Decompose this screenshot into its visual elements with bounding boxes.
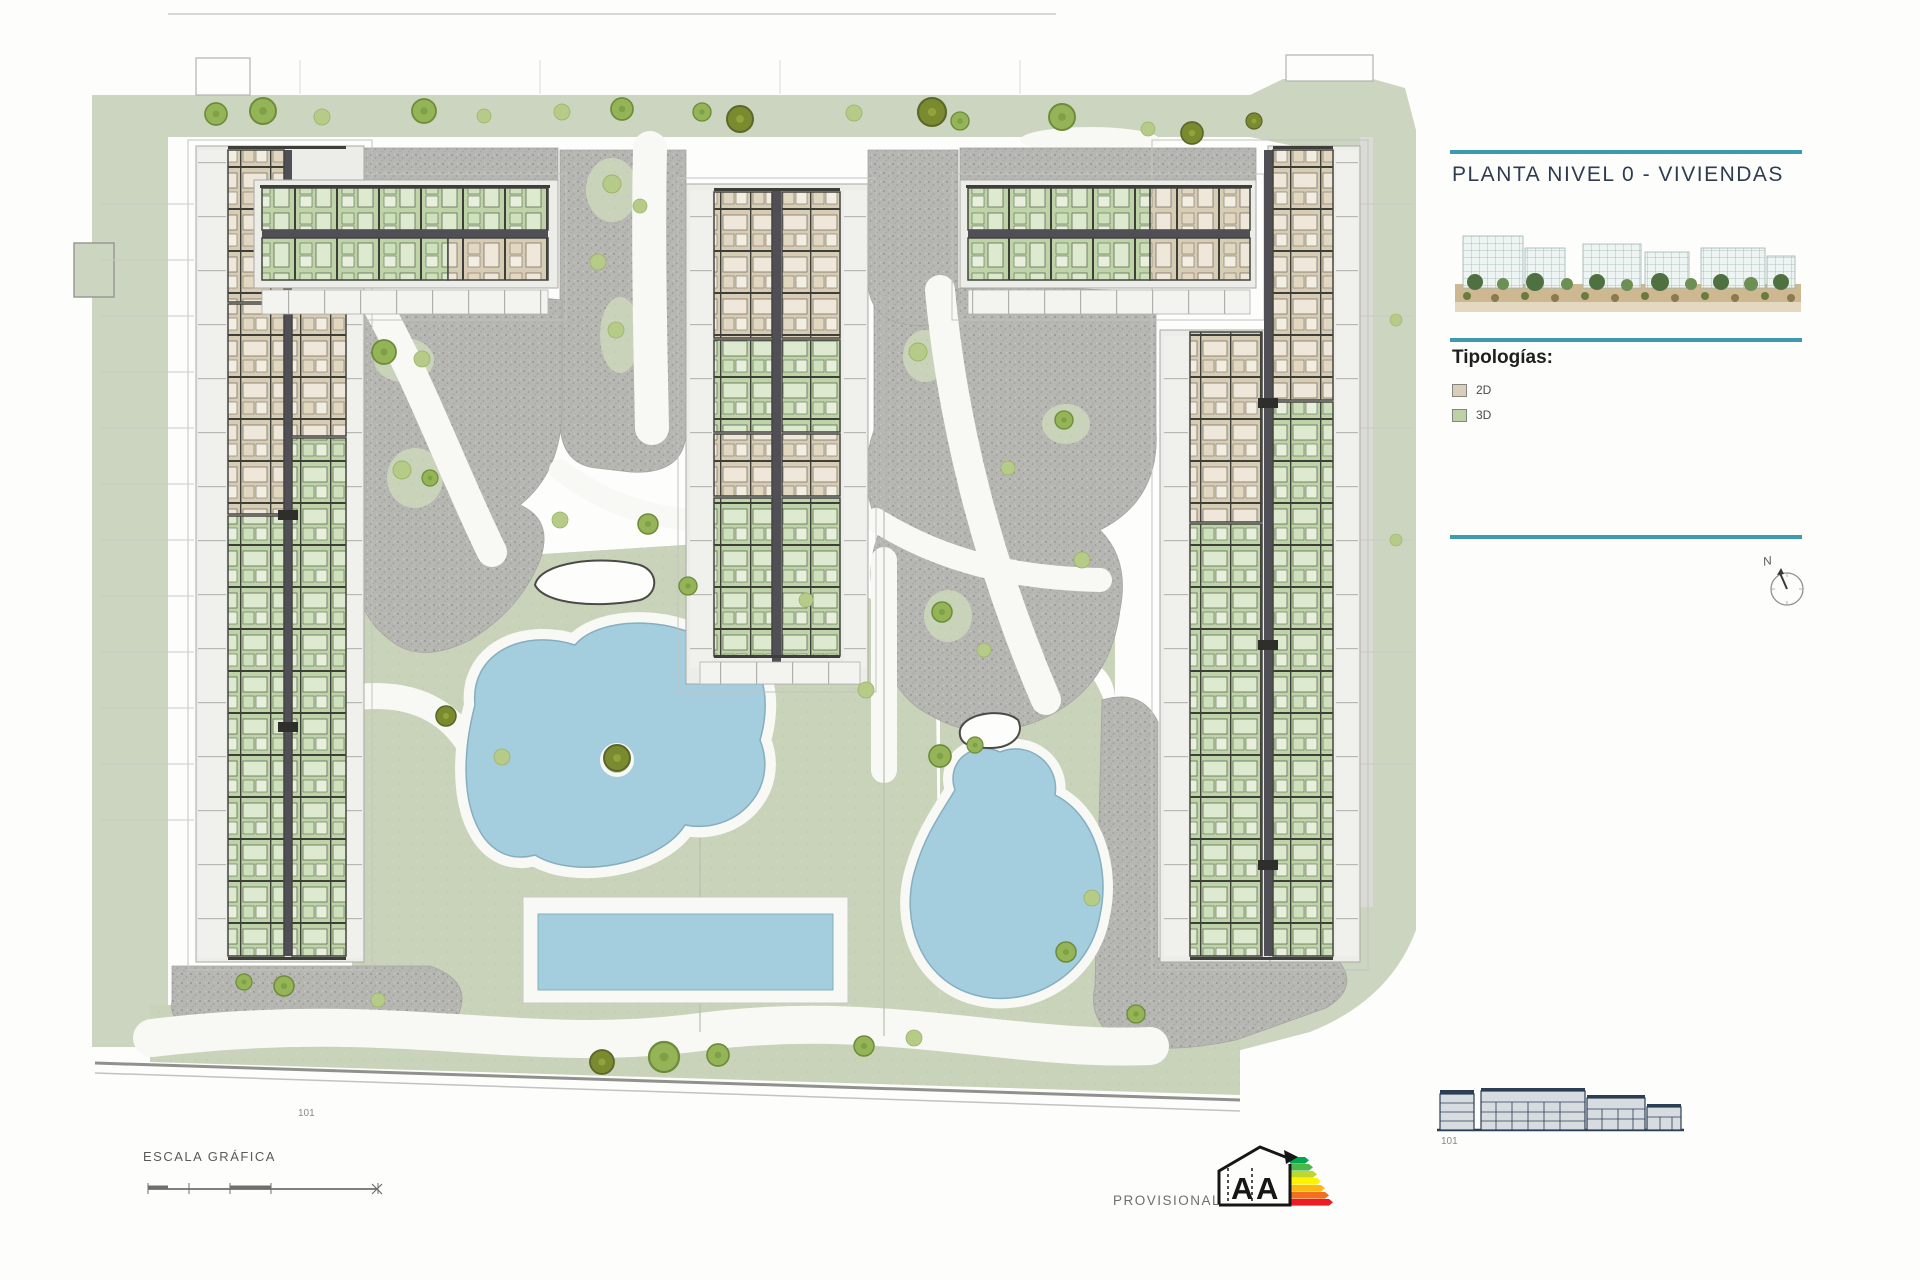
energy-certificate-icon: A A: [1219, 1147, 1333, 1206]
panel-divider-top: [1450, 150, 1802, 154]
plan-sheet-label: 101: [298, 1108, 315, 1119]
page-title: PLANTA NIVEL 0 - VIVIENDAS: [1452, 163, 1784, 187]
drawing-sheet: A A: [0, 0, 1920, 1280]
lap-pool: [538, 914, 833, 990]
legend-label-3d: 3D: [1476, 408, 1491, 422]
legend-label-2d: 2D: [1476, 383, 1491, 397]
legend-swatch-2d: [1452, 384, 1467, 397]
building-top-left: [254, 180, 558, 314]
project-render-thumbnail: [1455, 222, 1801, 318]
elevation-sheet-label: 101: [1441, 1136, 1458, 1147]
legend-item-3d: 3D: [1452, 408, 1491, 422]
scale-label: ESCALA GRÁFICA: [143, 1149, 276, 1164]
elevation-drawing: [1437, 1088, 1684, 1130]
legend-swatch-3d: [1452, 409, 1467, 422]
scale-bar: [148, 1183, 382, 1194]
legend-item-2d: 2D: [1452, 383, 1491, 397]
energy-letter-left: A: [1231, 1171, 1253, 1206]
building-top-right: [960, 180, 1256, 314]
legend-title: Tipologías:: [1452, 347, 1553, 369]
provisional-label: PROVISIONAL: [1113, 1193, 1221, 1208]
energy-letter-right: A: [1256, 1171, 1278, 1206]
panel-divider-bottom: [1450, 535, 1802, 539]
site-plan: A A: [0, 0, 1920, 1280]
building-center: [686, 184, 868, 684]
survey-line: [168, 14, 1056, 94]
panel-divider-middle: [1450, 338, 1802, 342]
north-compass-icon: [1771, 568, 1803, 605]
